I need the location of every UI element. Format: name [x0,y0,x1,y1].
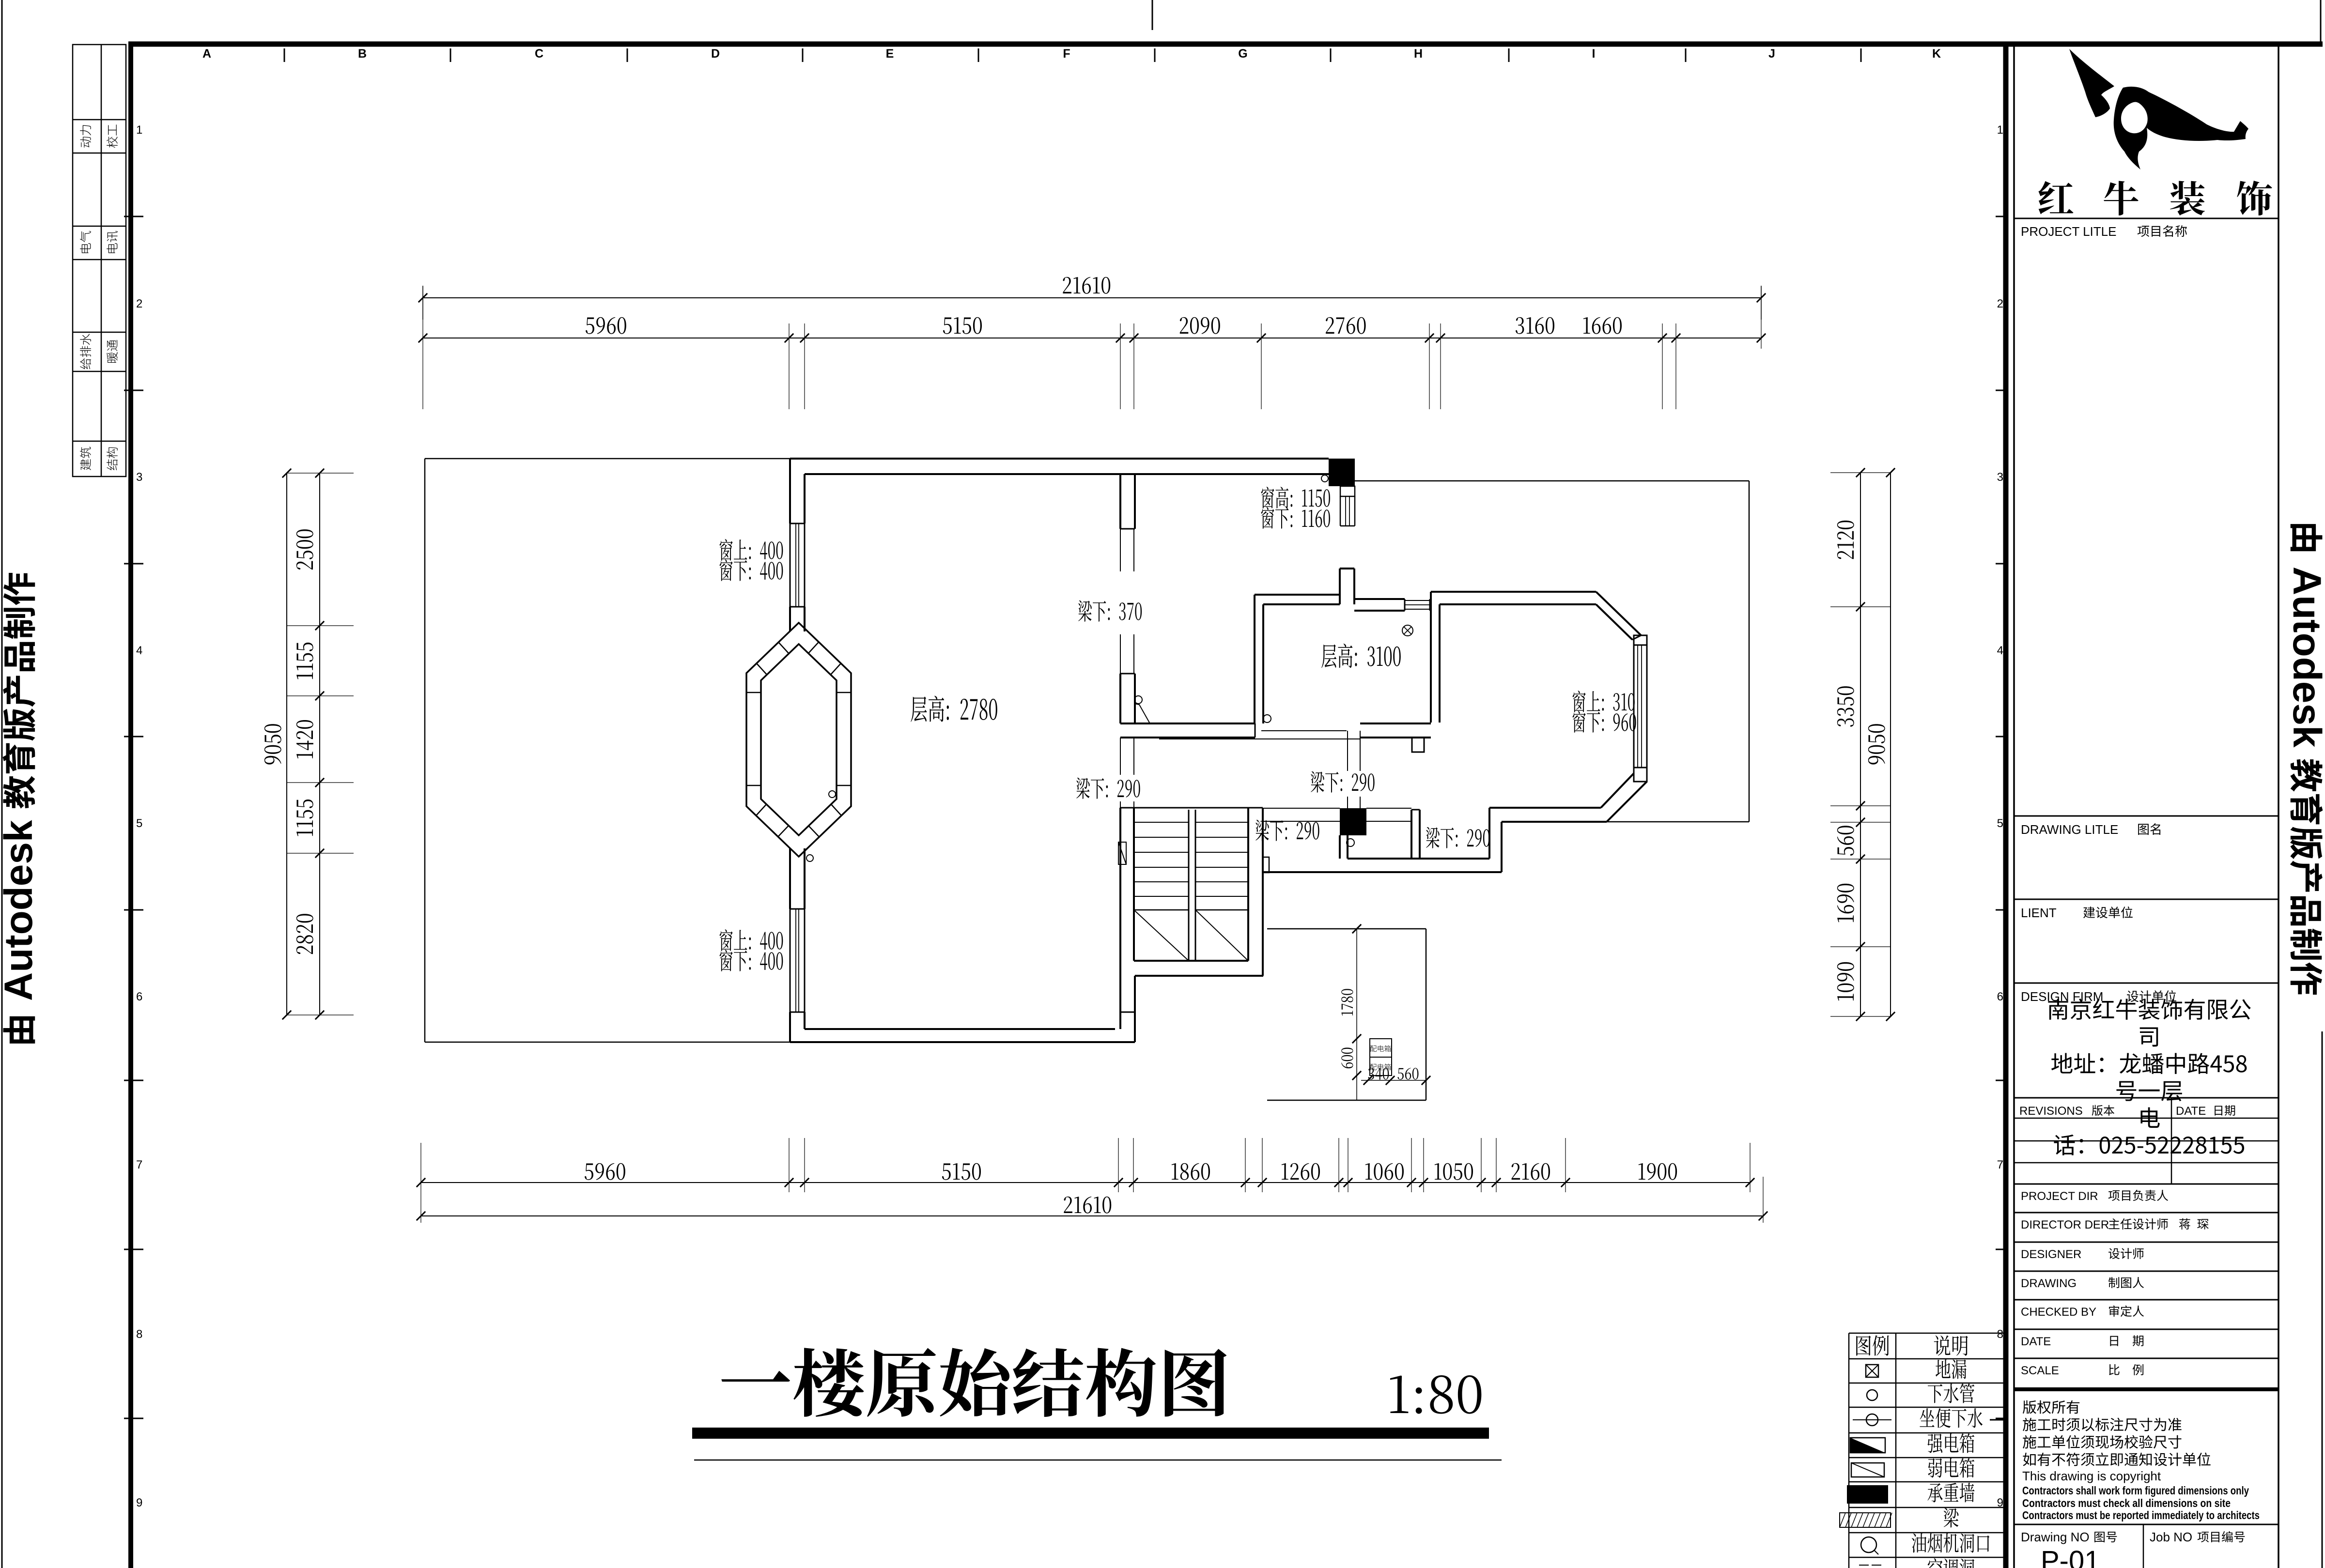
svg-text:A: A [202,47,211,61]
svg-text:Contractors shall work form fi: Contractors shall work form figured dime… [2022,1484,2249,1497]
svg-text:3: 3 [1997,471,2003,484]
svg-text:This drawing is copyright: This drawing is copyright [2022,1469,2161,1483]
svg-text:6: 6 [1997,990,2003,1003]
svg-text:G: G [1238,47,1247,61]
svg-text:C: C [535,47,543,61]
svg-text:3: 3 [136,471,142,484]
svg-text:4: 4 [136,644,142,657]
svg-text:Drawing NO: Drawing NO [2021,1530,2090,1544]
svg-text:2: 2 [1997,297,2003,310]
svg-text:7: 7 [1997,1158,2003,1171]
svg-text:SCALE: SCALE [2021,1364,2059,1377]
svg-text:F: F [1063,47,1070,61]
svg-text:4: 4 [1997,644,2003,657]
svg-text:DRAWING LITLE: DRAWING LITLE [2021,822,2118,837]
svg-text:CHECKED BY: CHECKED BY [2021,1306,2096,1319]
svg-text:2: 2 [136,297,142,310]
svg-text:DATE: DATE [2176,1105,2206,1118]
svg-text:B: B [358,47,367,61]
svg-text:1: 1 [136,123,142,137]
svg-text:P-01: P-01 [2041,1545,2100,1568]
svg-text:K: K [1932,47,1941,61]
svg-text:8: 8 [1997,1328,2003,1341]
svg-text:LIENT: LIENT [2021,906,2057,920]
svg-text:J: J [1768,47,1775,61]
svg-text:5: 5 [1997,817,2003,830]
svg-text:Autodesk: Autodesk [2285,567,2325,748]
svg-text:6: 6 [136,990,142,1003]
svg-text:REVISIONS: REVISIONS [2019,1105,2083,1118]
svg-text:Job NO: Job NO [2150,1530,2192,1544]
svg-text:Contractors must be reported i: Contractors must be reported immediately… [2022,1509,2260,1522]
svg-text:9: 9 [136,1496,142,1509]
svg-text:Contractors must check all dim: Contractors must check all dimensions on… [2022,1497,2231,1509]
svg-text:D: D [711,47,720,61]
svg-text:I: I [1592,47,1596,61]
svg-text:Autodesk: Autodesk [0,820,41,1001]
svg-text:DRAWING: DRAWING [2021,1277,2077,1290]
svg-text:DIRECTOR DER: DIRECTOR DER [2021,1218,2109,1231]
svg-text:8: 8 [136,1328,142,1341]
svg-text:DATE: DATE [2021,1335,2051,1348]
svg-text:H: H [1414,47,1423,61]
svg-text:E: E [886,47,894,61]
svg-text:PROJECT LITLE: PROJECT LITLE [2021,224,2116,239]
svg-text:PROJECT DIR: PROJECT DIR [2021,1190,2098,1203]
svg-text:7: 7 [136,1158,142,1171]
svg-text:5: 5 [136,817,142,830]
svg-text:1: 1 [1997,123,2003,137]
svg-text:DESIGNER: DESIGNER [2021,1248,2081,1261]
